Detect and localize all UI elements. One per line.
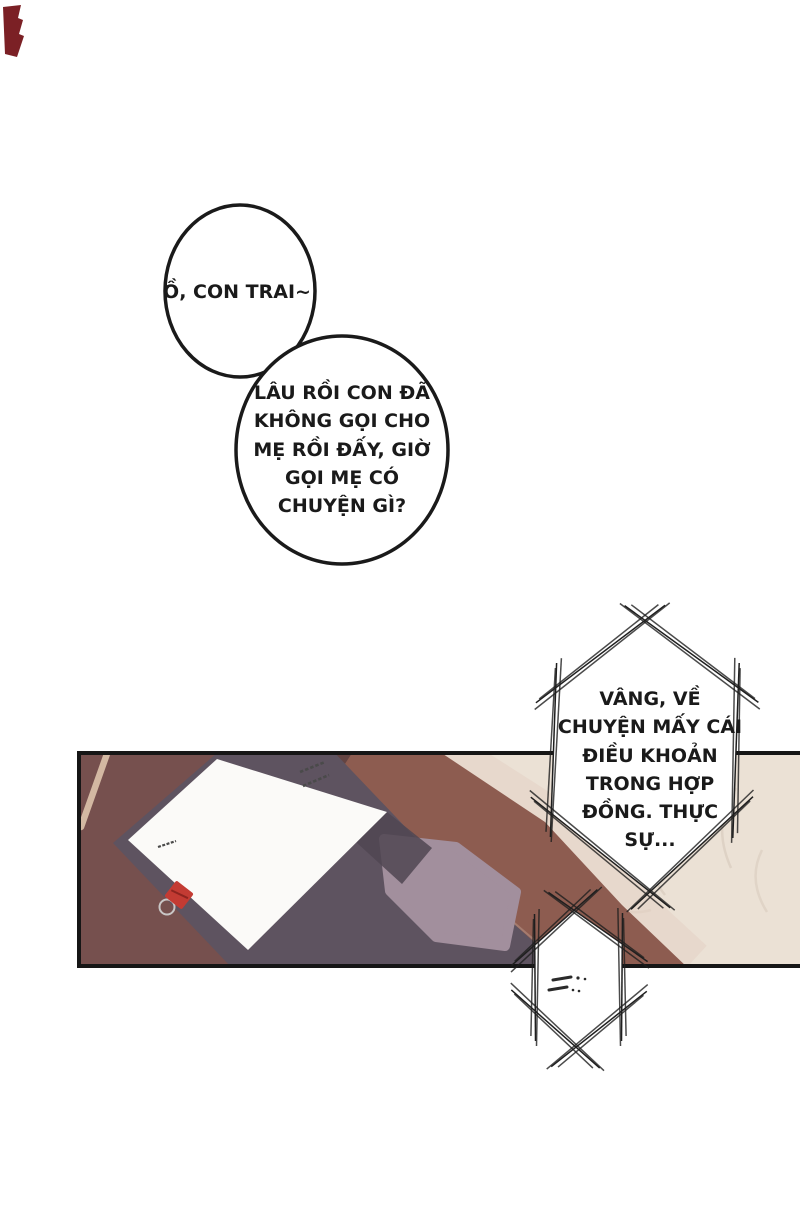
corner-mark <box>0 0 30 62</box>
speech-bubbles-layer <box>0 0 800 1223</box>
speech-line: MẸ RỒI ĐẤY, GIỜ <box>236 436 448 464</box>
speech-line: GỌI MẸ CÓ <box>236 464 448 492</box>
speech-line: LÂU RỒI CON ĐÃ <box>236 379 448 407</box>
ellipsis-scribble <box>549 976 586 992</box>
comic-page: { "comic": { "kind": "manhwa page (Vietn… <box>0 0 800 1223</box>
thought-line: VÂNG, VỀ <box>544 685 756 713</box>
corner-mark-shape <box>3 5 24 57</box>
speech-line: KHÔNG GỌI CHO <box>236 407 448 435</box>
speech-line: Ồ, CON TRAI~ <box>157 280 317 304</box>
panel-art <box>81 755 800 964</box>
speech-line: CHUYỆN GÌ? <box>236 492 448 520</box>
comic-panel <box>77 751 800 968</box>
speech-text-small: Ồ, CON TRAI~ <box>157 280 317 304</box>
thought-bubbles-layer <box>0 0 800 1223</box>
thought-line: CHUYỆN MẤY CÁI <box>544 713 756 741</box>
speech-bubble-small <box>165 205 315 377</box>
speech-bubble-large <box>236 336 448 564</box>
speech-text-large: LÂU RỒI CON ĐÃ KHÔNG GỌI CHO MẸ RỒI ĐẤY,… <box>236 379 448 520</box>
